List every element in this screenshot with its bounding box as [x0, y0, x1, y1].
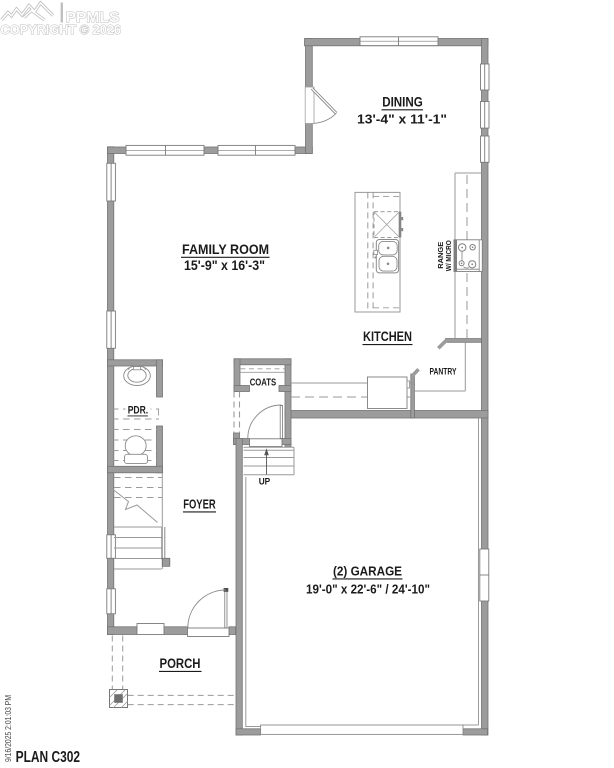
svg-text:FOYER: FOYER: [183, 498, 216, 512]
svg-text:DINING: DINING: [382, 95, 423, 110]
svg-text:FAMILY ROOM: FAMILY ROOM: [182, 241, 269, 257]
svg-text:COPYRIGHT © 2026: COPYRIGHT © 2026: [1, 22, 122, 37]
svg-text:19'-0" x 22'-6" / 24'-10": 19'-0" x 22'-6" / 24'-10": [306, 582, 430, 596]
svg-text:UP: UP: [259, 477, 271, 487]
svg-text:13'-4" x 11'-1": 13'-4" x 11'-1": [357, 111, 447, 126]
svg-text:PANTRY: PANTRY: [430, 367, 457, 378]
svg-text:PLAN C302: PLAN C302: [16, 749, 81, 766]
svg-text:PORCH: PORCH: [160, 656, 201, 671]
svg-text:PDR.: PDR.: [128, 405, 149, 417]
svg-text:9/16/2025 2:01:03 PM: 9/16/2025 2:01:03 PM: [4, 695, 13, 762]
svg-text:COATS: COATS: [250, 376, 277, 388]
svg-text:W/ MICRO: W/ MICRO: [444, 240, 453, 271]
svg-text:(2) GARAGE: (2) GARAGE: [333, 564, 402, 579]
svg-text:KITCHEN: KITCHEN: [363, 329, 412, 344]
svg-text:15'-9" x 16'-3": 15'-9" x 16'-3": [184, 258, 265, 273]
